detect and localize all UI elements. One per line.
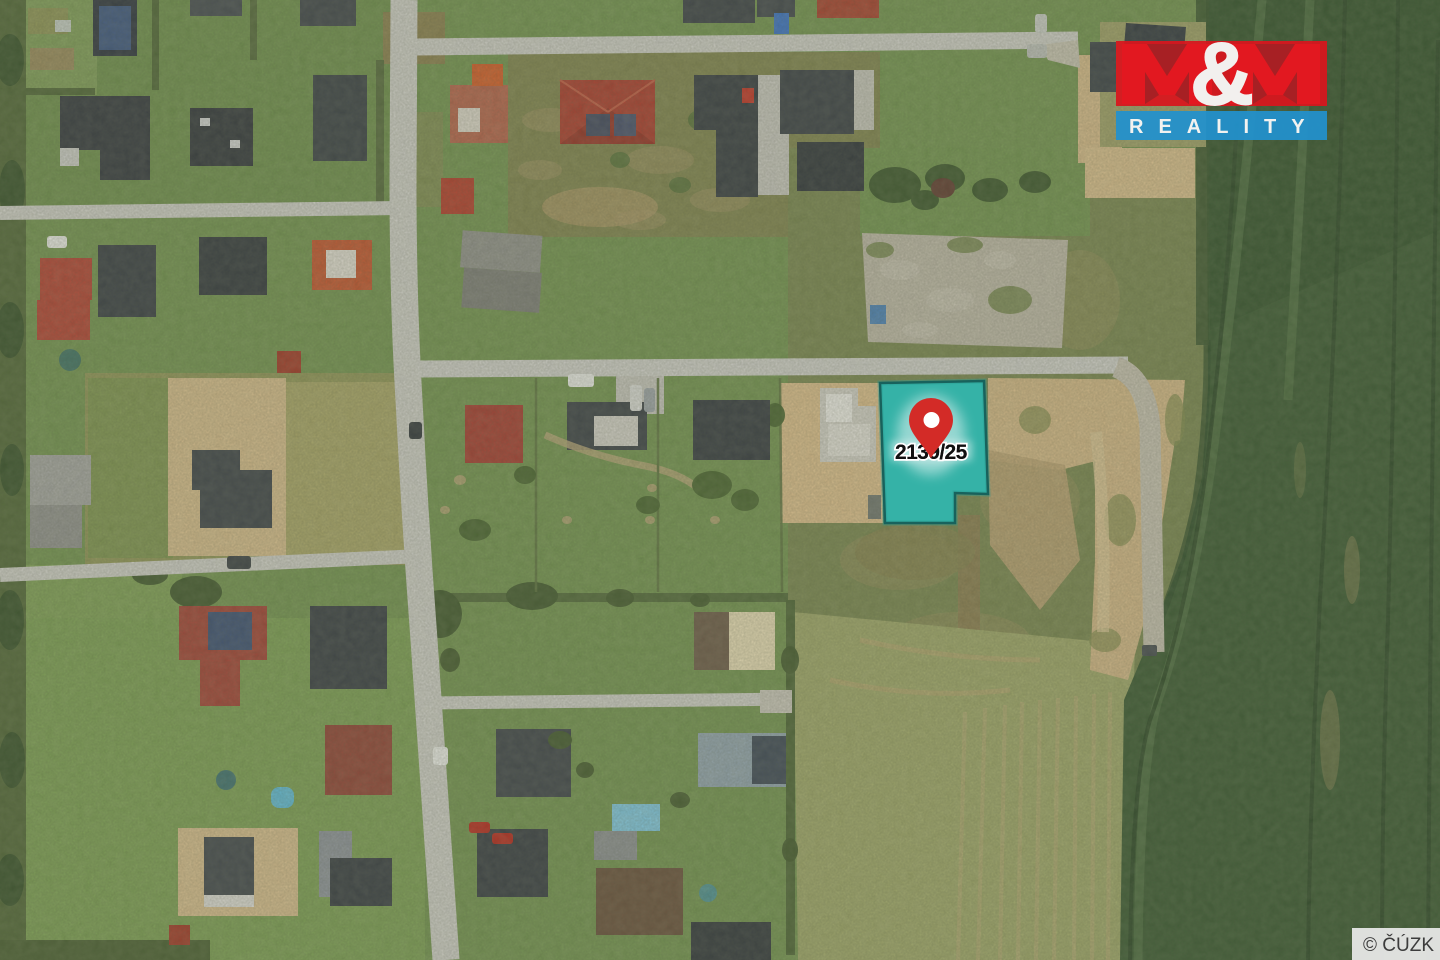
svg-text:© ČÚZK: © ČÚZK [1363, 934, 1434, 956]
svg-text:REALITY: REALITY [1129, 116, 1320, 138]
svg-text:&: & [1190, 24, 1254, 123]
